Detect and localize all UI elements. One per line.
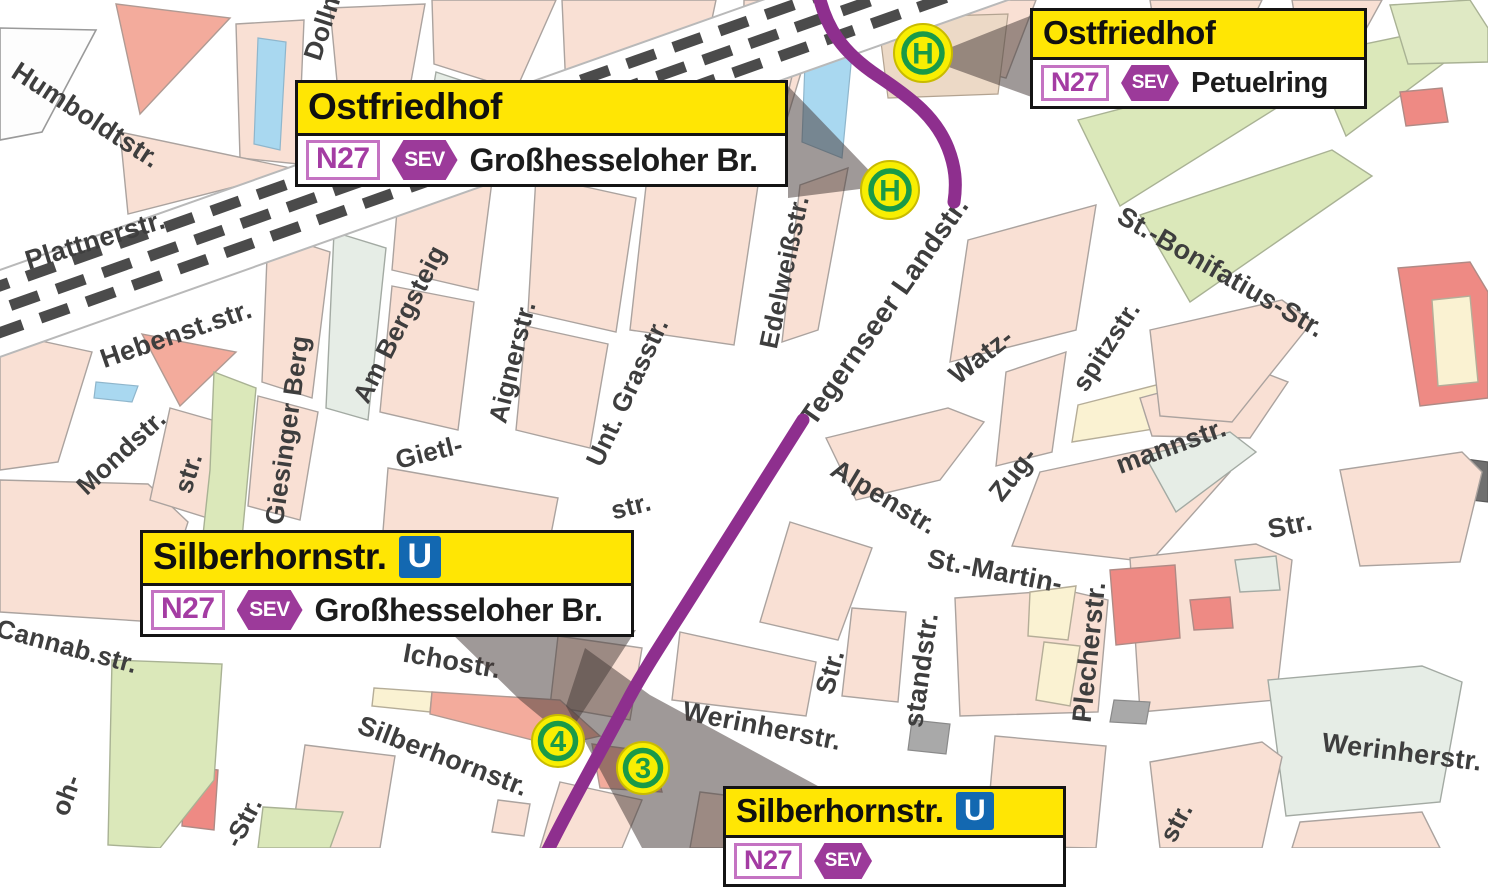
line-badge-n27: N27 <box>1041 65 1109 101</box>
stop-glyph: 3 <box>635 753 651 785</box>
stop-name-row: Silberhornstr.U <box>140 530 634 586</box>
destination-text: Petuelring <box>1191 67 1328 100</box>
line-badge-n27: N27 <box>151 590 225 630</box>
street-label: oh- <box>45 770 87 819</box>
destination-text: Großhesseloher Br. <box>315 592 603 629</box>
stop-name-text: Ostfriedhof <box>308 88 502 127</box>
street-label: str. <box>608 487 654 526</box>
stop-name-row: Ostfriedhof <box>295 80 788 136</box>
line-destination-row: N27SEVGroßhesseloher Br. <box>295 136 788 187</box>
stop-name-row: Ostfriedhof <box>1030 8 1367 60</box>
stop-callout[interactable]: OstfriedhofN27SEVGroßhesseloher Br. <box>295 80 788 187</box>
ubahn-icon: U <box>399 536 441 578</box>
street-label: St.-Martin- <box>925 543 1065 599</box>
stop-name-text: Silberhornstr. <box>736 794 944 829</box>
destination-text: Großhesseloher Br. <box>470 142 758 179</box>
line-destination-row: N27SEVGroßhesseloher Br. <box>140 586 634 637</box>
line-destination-row: N27SEV <box>723 838 1066 887</box>
sev-badge-icon: SEV <box>237 590 303 630</box>
stop-name-row: Silberhornstr.U <box>723 786 1066 838</box>
stop-callout[interactable]: Silberhornstr.UN27SEVGroßhesseloher Br. <box>140 530 634 637</box>
numbered-stop-3[interactable]: 3 <box>617 742 669 794</box>
sev-badge-icon: SEV <box>1121 65 1179 101</box>
sev-badge-icon: SEV <box>814 843 872 879</box>
street-label: Str. <box>1265 506 1315 545</box>
stop-glyph: 4 <box>550 726 566 758</box>
bus-stop-h-icon[interactable]: H <box>894 24 952 82</box>
stop-glyph: H <box>879 175 901 208</box>
street-label: Gietl- <box>392 429 465 475</box>
sev-badge-icon: SEV <box>392 140 458 180</box>
stop-callout[interactable]: OstfriedhofN27SEVPetuelring <box>1030 8 1367 109</box>
line-destination-row: N27SEVPetuelring <box>1030 60 1367 109</box>
stop-glyph: H <box>912 38 934 71</box>
bus-stop-h-icon[interactable]: H <box>861 161 919 219</box>
stop-callout[interactable]: Silberhornstr.UN27SEV <box>723 786 1066 887</box>
line-badge-n27: N27 <box>306 140 380 180</box>
line-badge-n27: N27 <box>734 843 802 879</box>
numbered-stop-4[interactable]: 4 <box>532 715 584 767</box>
street-label: Cannab.str. <box>0 613 141 679</box>
ubahn-icon: U <box>956 792 994 830</box>
stop-name-text: Silberhornstr. <box>153 538 387 577</box>
stop-name-text: Ostfriedhof <box>1043 16 1215 51</box>
